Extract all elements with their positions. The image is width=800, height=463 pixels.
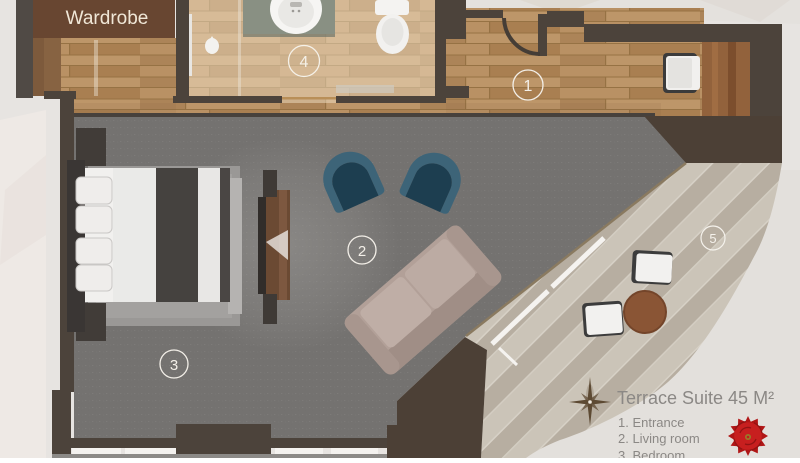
svg-text:Terrace Suite 45 M²: Terrace Suite 45 M² — [617, 388, 774, 408]
svg-text:3: 3 — [170, 357, 178, 374]
svg-text:4: 4 — [300, 54, 309, 71]
svg-text:1: 1 — [524, 78, 533, 95]
svg-text:2: 2 — [358, 243, 366, 260]
svg-text:Wardrobe: Wardrobe — [66, 8, 149, 29]
svg-text:3. Bedroom: 3. Bedroom — [618, 448, 685, 458]
svg-text:5: 5 — [709, 231, 716, 246]
svg-text:2. Living room: 2. Living room — [618, 431, 700, 446]
svg-text:1. Entrance: 1. Entrance — [618, 415, 685, 430]
